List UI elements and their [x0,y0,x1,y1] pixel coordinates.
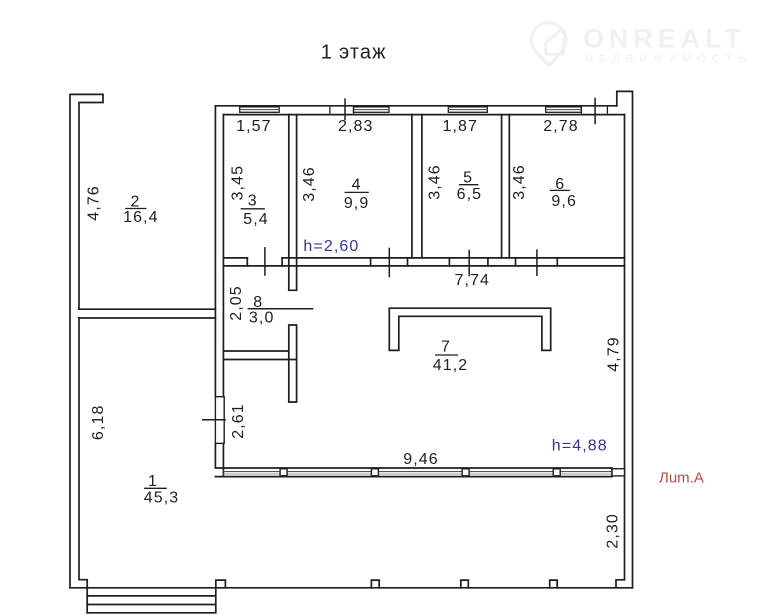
svg-text:2,30: 2,30 [604,513,621,549]
svg-text:9,6: 9,6 [551,193,577,210]
svg-text:9,9: 9,9 [344,195,370,212]
svg-text:h=2,60: h=2,60 [303,238,359,255]
svg-text:1,57: 1,57 [236,118,272,135]
svg-text:Лum.A: Лum.A [659,470,704,487]
svg-text:41,2: 41,2 [433,357,469,374]
svg-text:5,4: 5,4 [243,211,269,228]
svg-text:2,83: 2,83 [338,118,374,135]
svg-text:НЕДВИЖИМОСТЬ: НЕДВИЖИМОСТЬ [585,53,751,65]
svg-text:ONREALT: ONREALT [583,24,746,54]
svg-text:3,46: 3,46 [426,164,443,200]
svg-text:3,46: 3,46 [511,164,528,200]
svg-text:1: 1 [148,473,158,490]
svg-text:4,79: 4,79 [605,336,622,372]
svg-text:h=4,88: h=4,88 [552,438,608,455]
svg-text:45,3: 45,3 [144,490,180,507]
svg-text:3,0: 3,0 [249,309,275,326]
svg-text:16,4: 16,4 [123,209,159,226]
svg-text:этаж: этаж [339,41,387,63]
svg-text:3,46: 3,46 [301,166,318,202]
svg-text:2,05: 2,05 [228,285,245,321]
svg-text:7,74: 7,74 [455,272,491,289]
svg-text:3,45: 3,45 [229,165,246,201]
svg-text:2,78: 2,78 [543,118,579,135]
svg-text:4,76: 4,76 [86,185,103,221]
svg-text:7: 7 [441,339,451,356]
svg-text:1,87: 1,87 [443,118,479,135]
svg-text:2,61: 2,61 [230,403,247,439]
svg-text:6,5: 6,5 [457,186,483,203]
svg-text:3: 3 [248,193,258,210]
svg-text:4: 4 [352,176,362,193]
svg-text:6,18: 6,18 [90,405,107,441]
svg-text:9,46: 9,46 [403,451,439,468]
svg-text:1: 1 [321,41,333,63]
